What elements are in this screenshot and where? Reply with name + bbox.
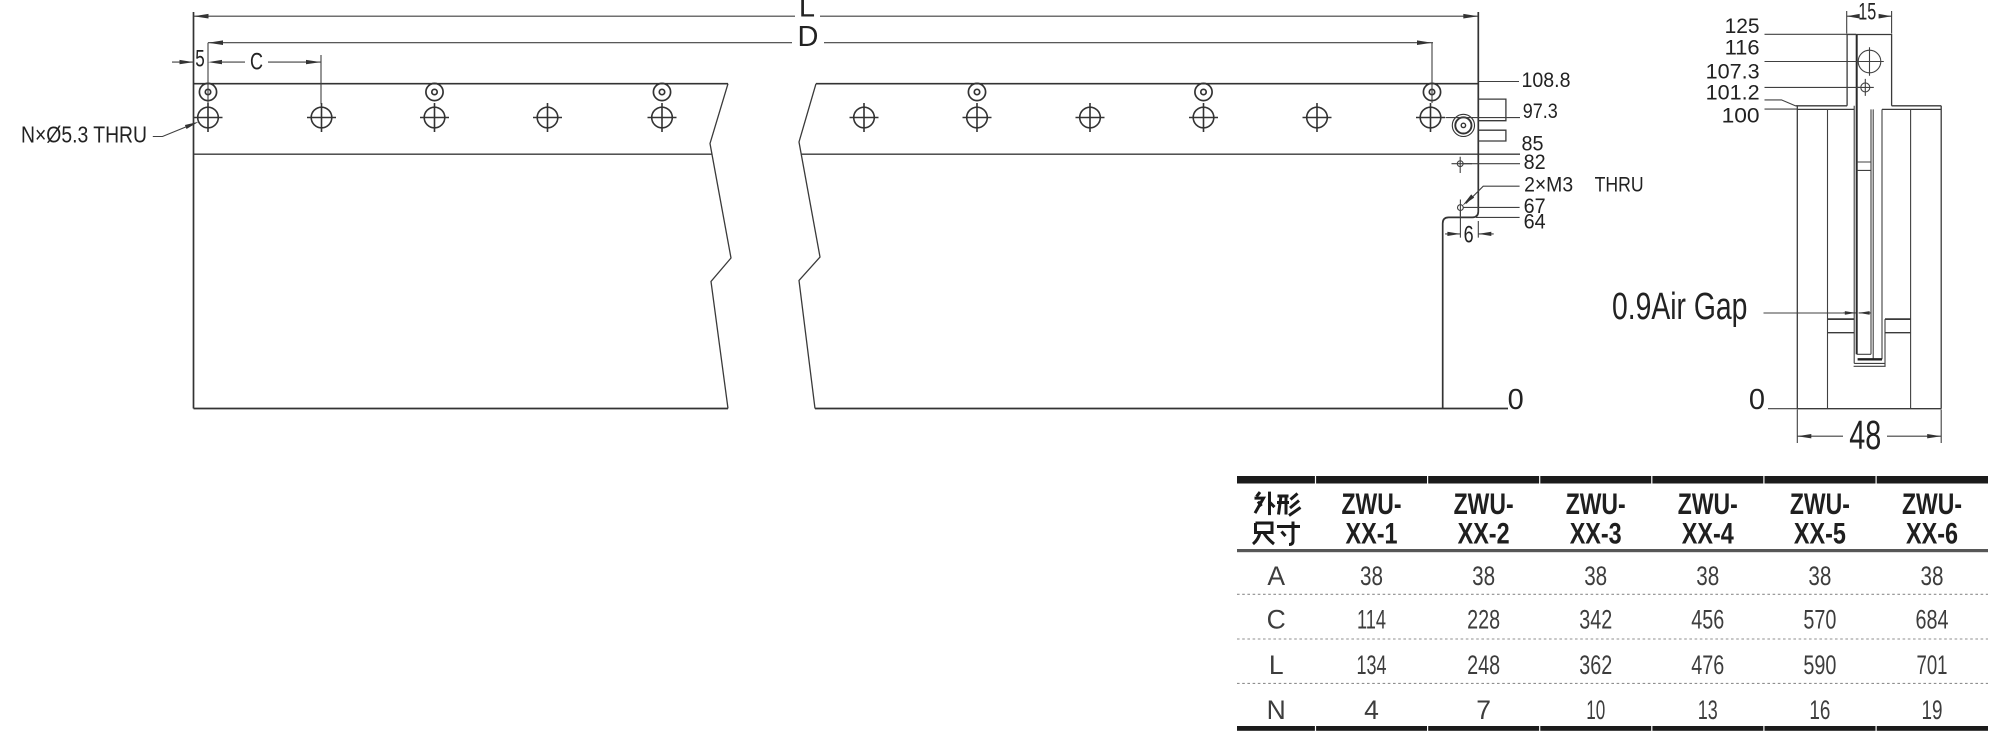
svg-text:476: 476 [1691,650,1724,680]
svg-text:134: 134 [1357,650,1387,680]
svg-text:ZWU-: ZWU- [1454,488,1514,521]
svg-text:342: 342 [1579,605,1612,635]
svg-text:C: C [1267,605,1286,635]
svg-text:10: 10 [1586,695,1605,725]
svg-text:N×Ø5.3 THRU: N×Ø5.3 THRU [21,122,147,148]
svg-text:4: 4 [1364,695,1379,725]
svg-text:248: 248 [1467,650,1500,680]
svg-text:XX-1: XX-1 [1346,518,1398,551]
svg-text:570: 570 [1803,605,1836,635]
svg-text:38: 38 [1808,561,1831,591]
svg-text:38: 38 [1584,561,1607,591]
svg-text:13: 13 [1698,695,1718,725]
svg-text:XX-4: XX-4 [1682,518,1734,551]
svg-text:590: 590 [1803,650,1836,680]
svg-text:ZWU-: ZWU- [1342,488,1402,521]
svg-text:XX-6: XX-6 [1906,518,1958,551]
svg-text:XX-3: XX-3 [1570,518,1622,551]
svg-text:101.2: 101.2 [1706,82,1760,105]
svg-text:ZWU-: ZWU- [1902,488,1962,521]
svg-text:THRU: THRU [1595,174,1644,197]
svg-text:16: 16 [1809,695,1830,725]
svg-text:64: 64 [1524,211,1546,234]
svg-text:48: 48 [1849,412,1881,458]
svg-text:ZWU-: ZWU- [1566,488,1626,521]
svg-text:5: 5 [195,46,205,73]
svg-text:38: 38 [1921,561,1944,591]
svg-text:N: N [1267,695,1286,725]
svg-text:701: 701 [1917,650,1948,680]
svg-text:XX-2: XX-2 [1458,518,1510,551]
svg-text:108.8: 108.8 [1522,69,1571,92]
svg-text:ZWU-: ZWU- [1790,488,1850,521]
svg-text:0: 0 [1508,384,1524,416]
svg-text:362: 362 [1579,650,1612,680]
svg-text:XX-5: XX-5 [1794,518,1846,551]
svg-text:38: 38 [1472,561,1495,591]
svg-text:228: 228 [1467,605,1500,635]
svg-text:7: 7 [1476,695,1491,725]
svg-text:38: 38 [1360,561,1383,591]
svg-text:15: 15 [1858,0,1876,26]
svg-text:456: 456 [1691,605,1724,635]
svg-text:97.3: 97.3 [1523,100,1558,123]
svg-text:684: 684 [1916,605,1949,635]
svg-text:82: 82 [1524,151,1546,174]
svg-text:107.3: 107.3 [1706,61,1760,84]
svg-text:0: 0 [1749,384,1765,416]
svg-text:116: 116 [1725,36,1760,59]
svg-text:0.9Air Gap: 0.9Air Gap [1612,286,1747,328]
svg-text:19: 19 [1922,695,1943,725]
svg-text:6: 6 [1464,222,1474,249]
svg-text:114: 114 [1357,605,1386,635]
svg-text:100: 100 [1722,104,1760,127]
svg-text:L: L [1269,650,1284,680]
svg-text:ZWU-: ZWU- [1678,488,1738,521]
svg-text:C: C [250,49,263,76]
svg-text:2×M3: 2×M3 [1524,174,1573,197]
svg-text:D: D [798,21,819,53]
svg-text:A: A [1267,561,1285,591]
svg-text:38: 38 [1696,561,1719,591]
svg-text:125: 125 [1725,15,1760,38]
